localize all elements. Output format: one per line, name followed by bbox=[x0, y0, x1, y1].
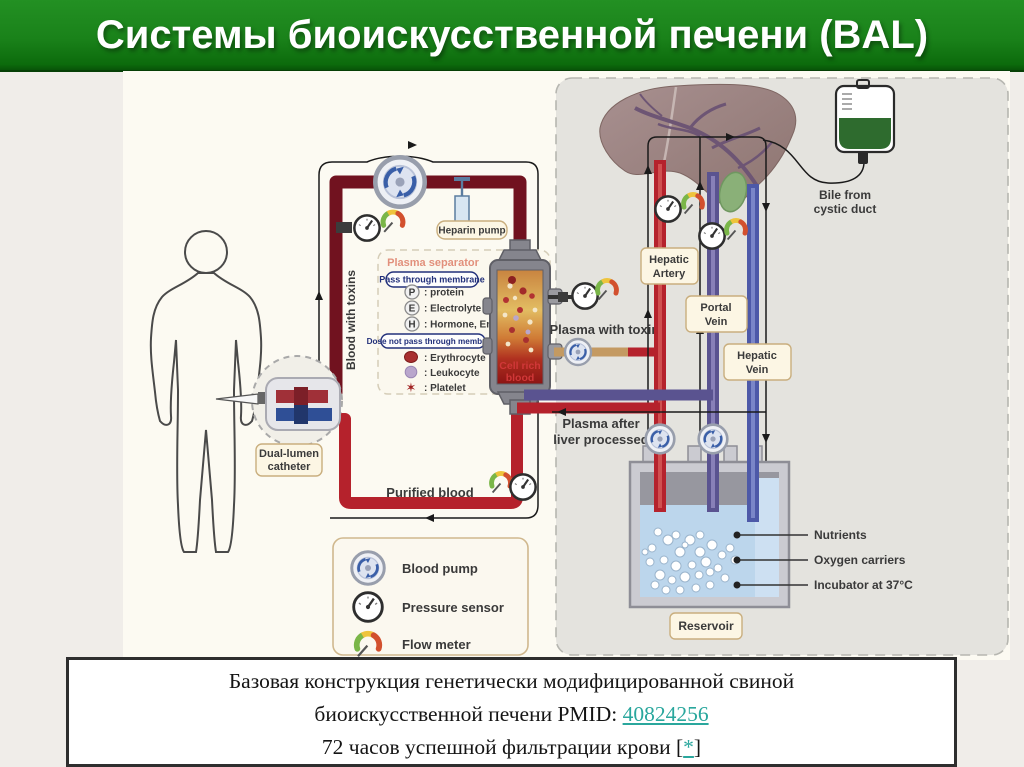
caption-box: Базовая конструкция генетически модифици… bbox=[66, 657, 957, 767]
svg-text:Artery: Artery bbox=[653, 268, 686, 280]
bile-label-line2: cystic duct bbox=[814, 202, 877, 216]
reference-link[interactable]: * bbox=[683, 735, 694, 759]
plasma-pump-icon bbox=[565, 339, 591, 365]
bal-diagram: Dual-lumen catheter Heparin pump Blood w… bbox=[115, 71, 1015, 663]
title-bar: Системы биоискусственной печени (BAL) bbox=[0, 0, 1024, 72]
reservoir-pump-icon bbox=[646, 425, 675, 454]
blood-pump-icon bbox=[375, 157, 424, 206]
blood-with-toxins-label: Blood with toxins bbox=[344, 270, 358, 370]
plasma-separator-title: Plasma separator bbox=[387, 257, 479, 269]
legend-blood-pump-label: Blood pump bbox=[402, 561, 478, 576]
platelet-label: : Platelet bbox=[424, 383, 466, 394]
pressure-sensor-icon-2 bbox=[572, 283, 597, 308]
pressure-sensor-icon-5 bbox=[699, 223, 724, 248]
pressure-sensor-icon-3 bbox=[510, 474, 535, 499]
caption-line1: Базовая конструкция генетически модифици… bbox=[69, 665, 954, 698]
heparin-pump-label: Heparin pump bbox=[438, 226, 505, 237]
plasma-with-toxins-label: Plasma with toxins bbox=[549, 322, 666, 337]
reservoir-label: Reservoir bbox=[678, 619, 734, 633]
legend-pressure-sensor-icon bbox=[354, 593, 383, 622]
plasma-after-label-line1: Plasma after bbox=[562, 416, 639, 431]
platelet-icon: ✶ bbox=[406, 380, 417, 395]
svg-text:Vein: Vein bbox=[746, 364, 769, 376]
pass-through-label: Pass through membrane bbox=[379, 275, 485, 285]
bile-bag-icon bbox=[836, 80, 894, 164]
electrolyte-label: : Electrolyte bbox=[424, 304, 482, 315]
slide: Системы биоискусственной печени (BAL) bbox=[0, 0, 1024, 767]
page-title: Системы биоискусственной печени (BAL) bbox=[96, 13, 928, 58]
symbols-legend: Blood pump Pressure sensor Flow meter bbox=[333, 538, 528, 656]
hormone-letter: H bbox=[408, 320, 415, 331]
hepatic-vein-label: Hepatic Vein bbox=[724, 344, 791, 380]
leukocyte-label: : Leukocyte bbox=[424, 368, 480, 379]
erythrocyte-label: : Erythrocyte bbox=[424, 353, 486, 364]
sensor-fitting-2 bbox=[558, 292, 568, 302]
protein-letter: P bbox=[409, 288, 416, 299]
legend-blood-pump-icon bbox=[352, 552, 385, 585]
svg-text:Hepatic: Hepatic bbox=[649, 254, 689, 266]
purified-blood-label: Purified blood bbox=[386, 485, 473, 500]
svg-text:Vein: Vein bbox=[705, 316, 728, 328]
cell-rich-blood-line2: blood bbox=[506, 372, 535, 384]
dual-lumen-label-line1: Dual-lumen bbox=[259, 448, 319, 460]
erythrocyte-icon bbox=[405, 352, 418, 363]
plasma-after-label-line2: liver processed bbox=[553, 432, 648, 447]
pmid-link[interactable]: 40824256 bbox=[623, 702, 709, 726]
legend-flow-meter-label: Flow meter bbox=[402, 637, 471, 652]
nutrients-label: Nutrients bbox=[814, 528, 867, 542]
reservoir-pump-icon-2 bbox=[699, 425, 728, 454]
cell-rich-blood-line1: Cell rich bbox=[499, 360, 540, 372]
sensor-fitting bbox=[336, 222, 352, 233]
oxygen-carriers-label: Oxygen carriers bbox=[814, 553, 906, 567]
protein-label: : protein bbox=[424, 288, 464, 299]
legend-pressure-sensor-label: Pressure sensor bbox=[402, 600, 504, 615]
portal-vein-label: Portal Vein bbox=[686, 296, 747, 332]
electrolyte-letter: E bbox=[409, 304, 416, 315]
pressure-sensor-icon-4 bbox=[655, 196, 680, 221]
dual-lumen-label-line2: catheter bbox=[268, 461, 312, 473]
caption-line3: 72 часов успешной фильтрации крови [*] bbox=[69, 731, 954, 764]
leukocyte-icon bbox=[405, 366, 417, 378]
incubator-label: Incubator at 37°C bbox=[814, 578, 913, 592]
svg-text:Portal: Portal bbox=[700, 302, 731, 314]
dual-lumen-catheter-label: Dual-lumen catheter bbox=[256, 444, 322, 476]
svg-text:Hepatic: Hepatic bbox=[737, 350, 777, 362]
caption-line2: биоискусственной печени PMID: 40824256 bbox=[69, 698, 954, 731]
not-pass-label: Dose not pass through membrane bbox=[367, 337, 500, 346]
hepatic-artery-label: Hepatic Artery bbox=[641, 248, 698, 284]
bile-label-line1: Bile from bbox=[819, 188, 871, 202]
pressure-sensor-icon bbox=[354, 215, 379, 240]
